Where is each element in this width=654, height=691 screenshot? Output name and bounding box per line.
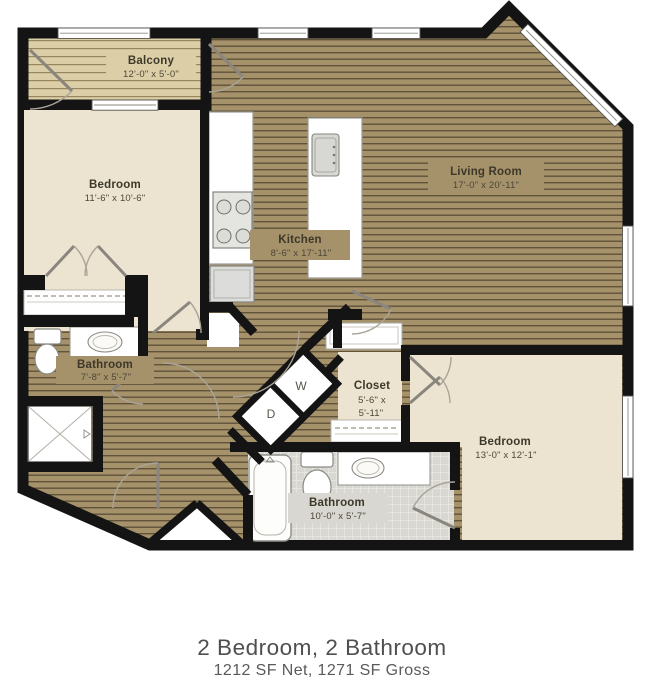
vanity-sink: [70, 327, 140, 358]
window: [623, 226, 634, 306]
window: [623, 396, 634, 478]
bathtub: [249, 455, 291, 541]
bedroom-1-closet: [24, 290, 132, 315]
room-dims: 13'-0" x 12'-1": [475, 450, 536, 461]
stove: [213, 192, 252, 248]
refrigerator: [210, 266, 254, 302]
room-dims: 17'-0" x 20'-11": [453, 180, 519, 191]
caption: 2 Bedroom, 2 Bathroom 1212 SF Net, 1271 …: [197, 635, 446, 679]
room-name: Bathroom: [77, 359, 133, 371]
room-name: Kitchen: [278, 234, 322, 246]
room-dims: 8'-6" x 17'-11": [271, 248, 332, 259]
kitchen-sink: [312, 134, 339, 176]
vanity-sink: [338, 452, 430, 485]
wall-closet-left: [20, 275, 45, 290]
wall-bedroom2-top: [405, 345, 633, 355]
room-name: Living Room: [450, 166, 522, 178]
room-dims: 5'-6" x: [358, 395, 386, 406]
room-name: Bedroom: [89, 179, 141, 191]
dryer-label: D: [267, 407, 276, 421]
floor-plan-page: W D: [0, 0, 654, 691]
plan-title: 2 Bedroom, 2 Bathroom: [197, 635, 446, 660]
closet-rod-shelf: [331, 420, 402, 442]
wall-shower-top: [23, 396, 103, 406]
floor-plan-drawing: W D: [0, 0, 654, 691]
wall-shower-bottom: [23, 462, 103, 472]
wall-bath2-left: [243, 495, 253, 545]
room-name: Bedroom: [479, 436, 531, 448]
window: [258, 28, 308, 39]
plan-subtitle: 1212 SF Net, 1271 SF Gross: [214, 662, 431, 679]
washer-label: W: [295, 379, 307, 393]
wall-bedroom1-door-jamb: [196, 329, 209, 340]
room-dims: 11'-6" x 10'-6": [85, 193, 146, 204]
room-name: Balcony: [128, 55, 175, 67]
room-dims: 10'-0" x 5'-7": [310, 511, 366, 522]
room-dims: 12'-0" x 5'-0": [123, 69, 179, 80]
room-name: Closet: [354, 380, 390, 392]
wall-bathroom2-right-upper: [450, 442, 460, 490]
room-dims: 7'-8" x 5'-7": [81, 372, 131, 383]
window: [58, 28, 150, 39]
wall-bathroom2-right-lower: [450, 528, 460, 550]
wall-bathroom1-top: [18, 315, 134, 327]
room-name: Bathroom: [309, 497, 365, 509]
window: [92, 100, 158, 110]
wall-closet-right: [125, 275, 148, 317]
room-dims: 5'-11": [359, 408, 384, 419]
wall-bathroom1-door-jamb: [138, 315, 148, 360]
shower: [28, 406, 92, 462]
wall-shower-right: [93, 396, 103, 470]
window: [372, 28, 420, 39]
